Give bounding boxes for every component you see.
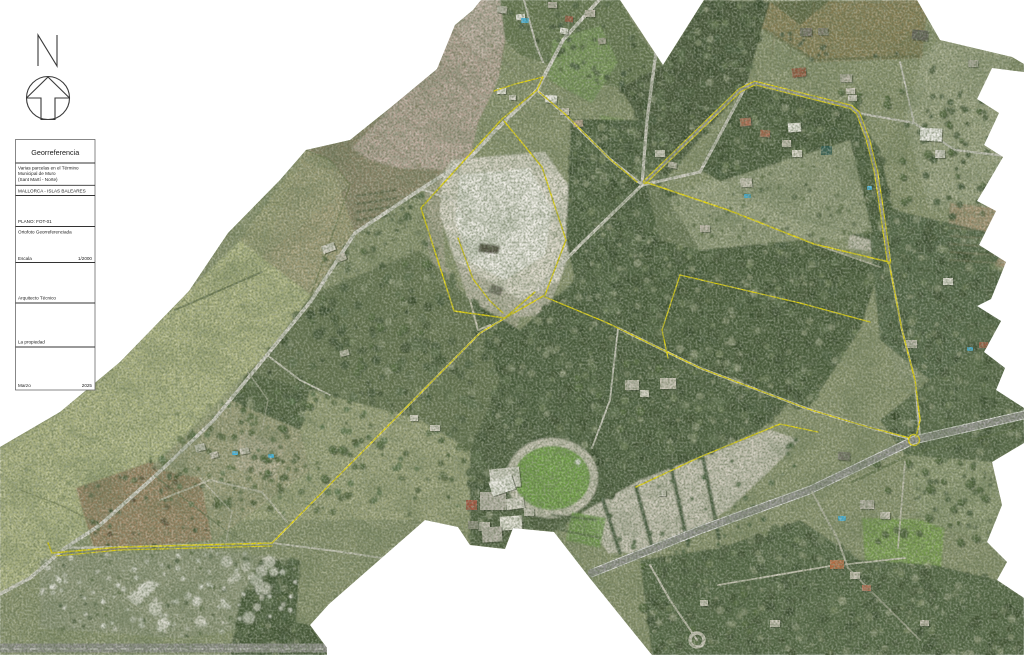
svg-text:PLANO: FOT-01: PLANO: FOT-01 (18, 219, 52, 224)
svg-text:MALLORCA - ISLAS BALEARES: MALLORCA - ISLAS BALEARES (18, 188, 86, 193)
svg-text:Escala: Escala (18, 256, 32, 261)
svg-text:Ortofoto Georreferenciada: Ortofoto Georreferenciada (18, 229, 72, 234)
svg-text:Arquitecto Técnico: Arquitecto Técnico (18, 295, 56, 300)
svg-text:2025: 2025 (82, 383, 93, 388)
svg-text:Georreferencia: Georreferencia (31, 148, 79, 157)
svg-text:Municipal de Muro: Municipal de Muro (18, 171, 56, 176)
svg-text:(Sant Martí - Norte): (Sant Martí - Norte) (18, 177, 58, 182)
svg-text:Varias parcelas en el Término: Varias parcelas en el Término (18, 166, 79, 171)
svg-text:Marzo: Marzo (18, 383, 31, 388)
svg-text:La propiedad: La propiedad (18, 340, 45, 345)
svg-text:1/2000: 1/2000 (78, 256, 92, 261)
